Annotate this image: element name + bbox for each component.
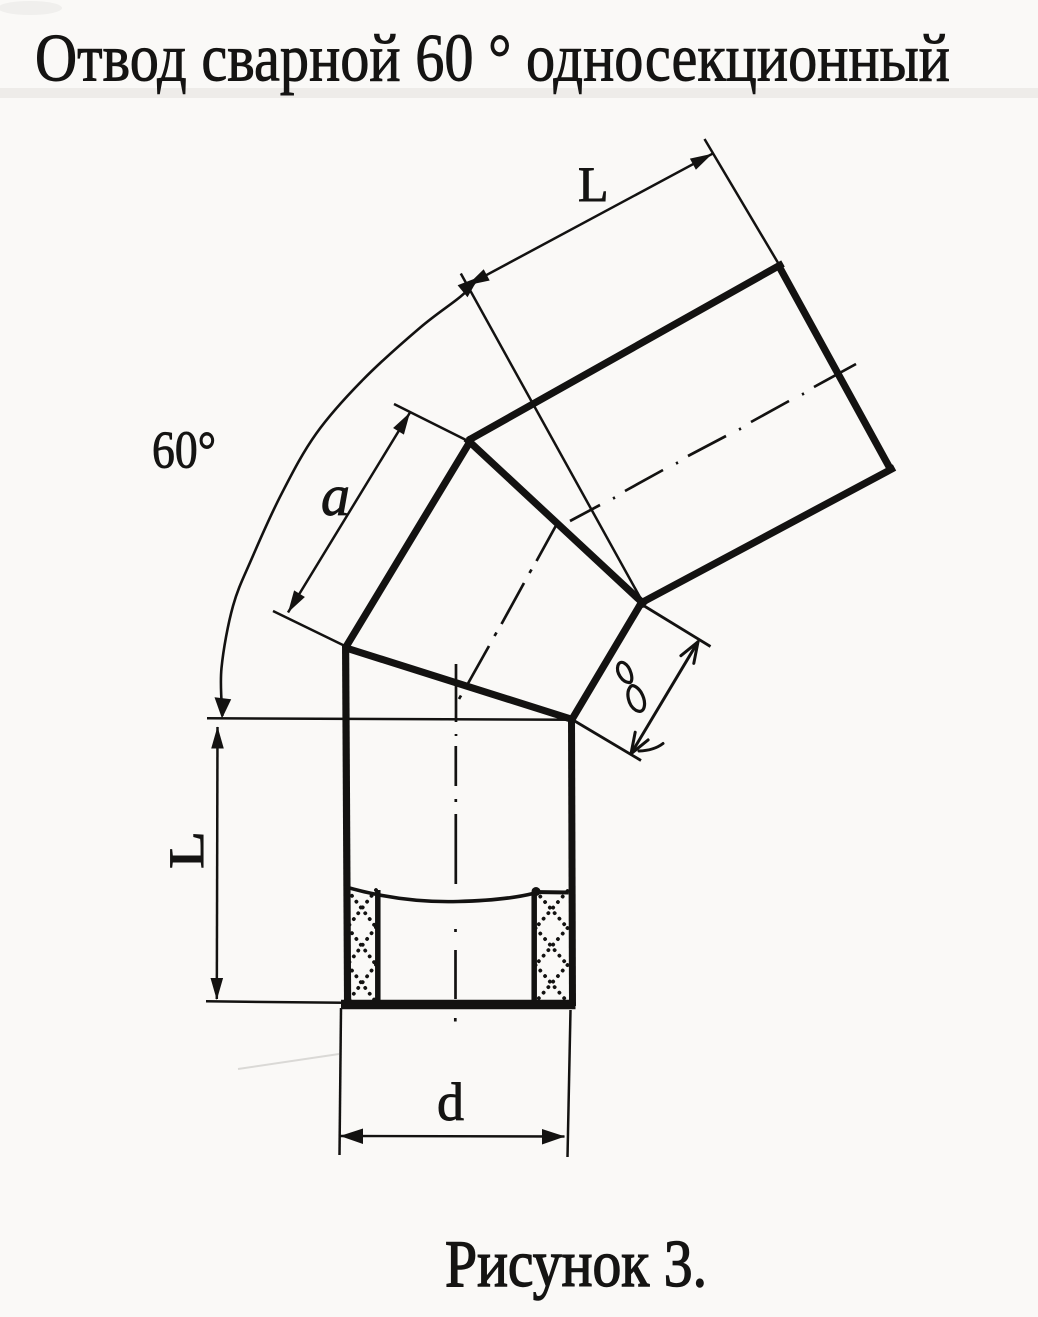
svg-text:L: L [160,831,215,869]
svg-text:Отвод сварной 60 ° односекцион: Отвод сварной 60 ° односекционный [35,20,950,96]
svg-text:Рисунок 3.: Рисунок 3. [445,1227,707,1301]
svg-text:L: L [578,156,609,212]
svg-text:d: d [437,1072,464,1132]
svg-text:a: a [321,463,350,528]
svg-text:60°: 60° [152,422,216,480]
